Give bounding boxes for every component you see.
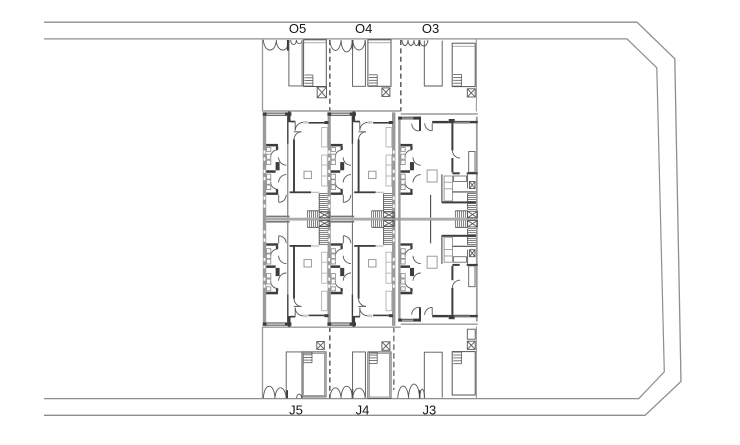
svg-text:J4: J4 bbox=[356, 403, 370, 418]
svg-text:J3: J3 bbox=[423, 403, 437, 418]
svg-text:O4: O4 bbox=[355, 21, 372, 36]
svg-text:O5: O5 bbox=[289, 21, 306, 36]
svg-text:O3: O3 bbox=[422, 21, 439, 36]
svg-text:J5: J5 bbox=[289, 403, 303, 418]
